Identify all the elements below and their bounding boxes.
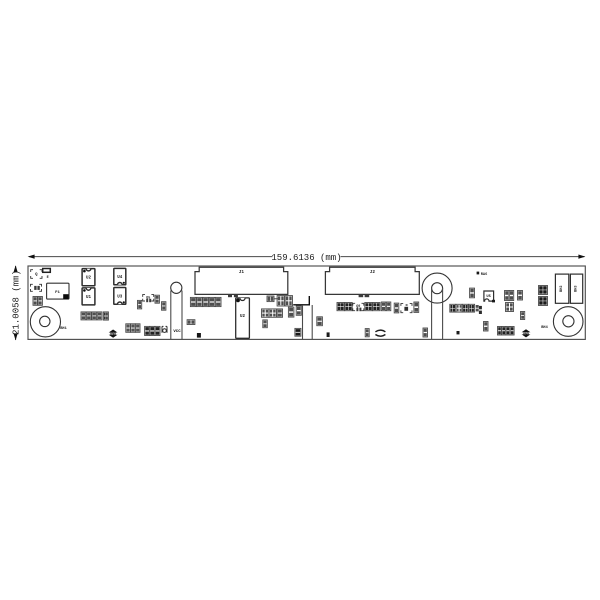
svg-text:BH2: BH2 [560,285,564,291]
svg-text:RA6: RA6 [481,273,487,277]
svg-text:F1: F1 [55,291,60,295]
svg-text:BH1: BH1 [60,327,66,331]
svg-text:U2: U2 [240,315,246,319]
svg-text:U5: U5 [486,295,491,299]
svg-text:U3: U3 [117,295,123,299]
svg-text:BH3: BH3 [575,285,579,291]
svg-text:VCC: VCC [173,330,181,334]
svg-text:J2: J2 [370,270,376,275]
svg-text:U4: U4 [117,276,123,280]
svg-text:GND: GND [523,333,529,337]
svg-text:BH4: BH4 [541,326,548,330]
svg-text:J1: J1 [239,270,245,275]
svg-text:U2: U2 [86,277,92,281]
svg-text:U1: U1 [86,296,92,300]
svg-text:GND: GND [110,333,116,337]
svg-text:159.6136 (mm): 159.6136 (mm) [271,253,341,263]
svg-text:21.0058 (mm): 21.0058 (mm) [12,270,22,335]
